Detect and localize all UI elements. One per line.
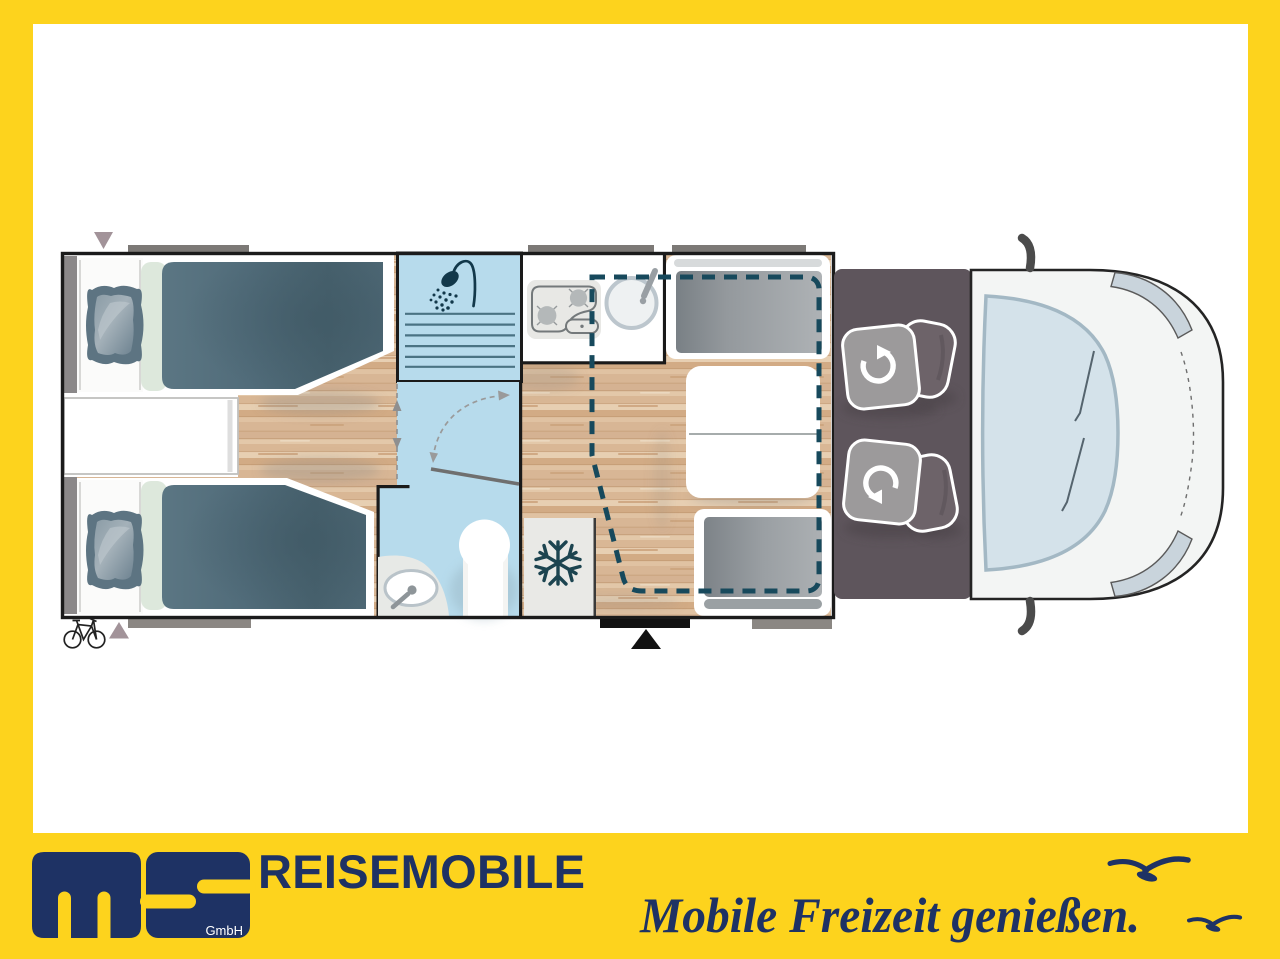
svg-text:Mobile Freizeit genießen.: Mobile Freizeit genießen. [639, 887, 1140, 943]
svg-text:REISEMOBILE: REISEMOBILE [258, 845, 585, 898]
svg-text:GmbH: GmbH [205, 923, 243, 938]
